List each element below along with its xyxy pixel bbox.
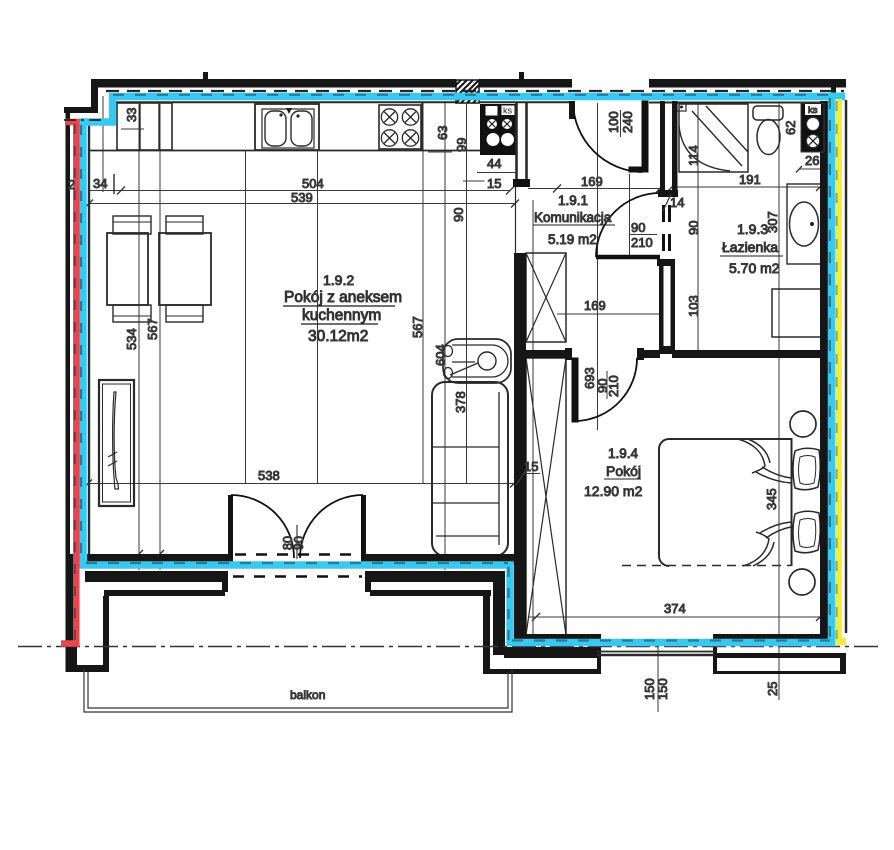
svg-text:2: 2 [68, 177, 75, 192]
svg-text:169: 169 [584, 298, 606, 313]
svg-text:1.9.4: 1.9.4 [608, 446, 639, 461]
svg-text:Łazienka: Łazienka [722, 239, 778, 255]
svg-text:12.90 m2: 12.90 m2 [584, 483, 643, 499]
svg-text:kuchennym: kuchennym [302, 307, 381, 324]
svg-text:504: 504 [302, 176, 324, 191]
svg-text:90: 90 [292, 536, 306, 550]
svg-text:63: 63 [435, 126, 450, 140]
svg-text:100: 100 [606, 111, 621, 133]
svg-text:307: 307 [765, 211, 780, 233]
svg-text:25: 25 [765, 682, 780, 696]
svg-text:99: 99 [454, 138, 469, 152]
svg-text:62: 62 [783, 121, 798, 135]
svg-text:1.9.1: 1.9.1 [558, 193, 588, 208]
svg-text:90: 90 [451, 208, 466, 222]
svg-text:1.9.2: 1.9.2 [323, 272, 354, 288]
svg-text:5.70 m2: 5.70 m2 [729, 260, 780, 276]
svg-text:ks: ks [503, 106, 513, 116]
svg-text:balkon: balkon [290, 688, 325, 702]
svg-text:378: 378 [453, 391, 468, 413]
svg-text:169: 169 [581, 174, 603, 189]
svg-text:Pokój z aneksem: Pokój z aneksem [284, 289, 402, 306]
svg-text:34: 34 [93, 176, 107, 191]
svg-text:114: 114 [686, 145, 701, 166]
svg-text:44: 44 [487, 156, 501, 171]
svg-text:534: 534 [124, 328, 139, 350]
svg-text:567: 567 [410, 316, 425, 338]
svg-text:567: 567 [145, 318, 160, 340]
svg-text:150: 150 [655, 678, 670, 700]
svg-text:15: 15 [524, 459, 538, 474]
svg-text:538: 538 [258, 468, 280, 483]
svg-text:15: 15 [487, 176, 501, 191]
svg-text:26: 26 [805, 153, 819, 168]
svg-text:210: 210 [606, 375, 621, 397]
svg-text:210: 210 [631, 235, 653, 250]
svg-text:90: 90 [686, 221, 701, 235]
svg-text:5.19 m2: 5.19 m2 [548, 232, 597, 247]
svg-text:240: 240 [620, 111, 635, 133]
svg-text:Komunikacja: Komunikacja [534, 210, 612, 225]
svg-text:374: 374 [664, 601, 686, 616]
svg-text:ks: ks [808, 105, 818, 116]
svg-text:14: 14 [670, 195, 684, 210]
svg-text:191: 191 [739, 172, 761, 187]
svg-text:Pokój: Pokój [606, 463, 641, 479]
svg-text:103: 103 [686, 295, 701, 317]
svg-text:1.9.3: 1.9.3 [737, 221, 768, 237]
svg-text:90: 90 [631, 220, 645, 235]
svg-text:539: 539 [291, 190, 313, 205]
svg-text:604: 604 [433, 344, 448, 366]
svg-text:345: 345 [764, 488, 779, 510]
svg-text:33: 33 [124, 108, 139, 122]
svg-text:30.12m2: 30.12m2 [308, 328, 368, 345]
